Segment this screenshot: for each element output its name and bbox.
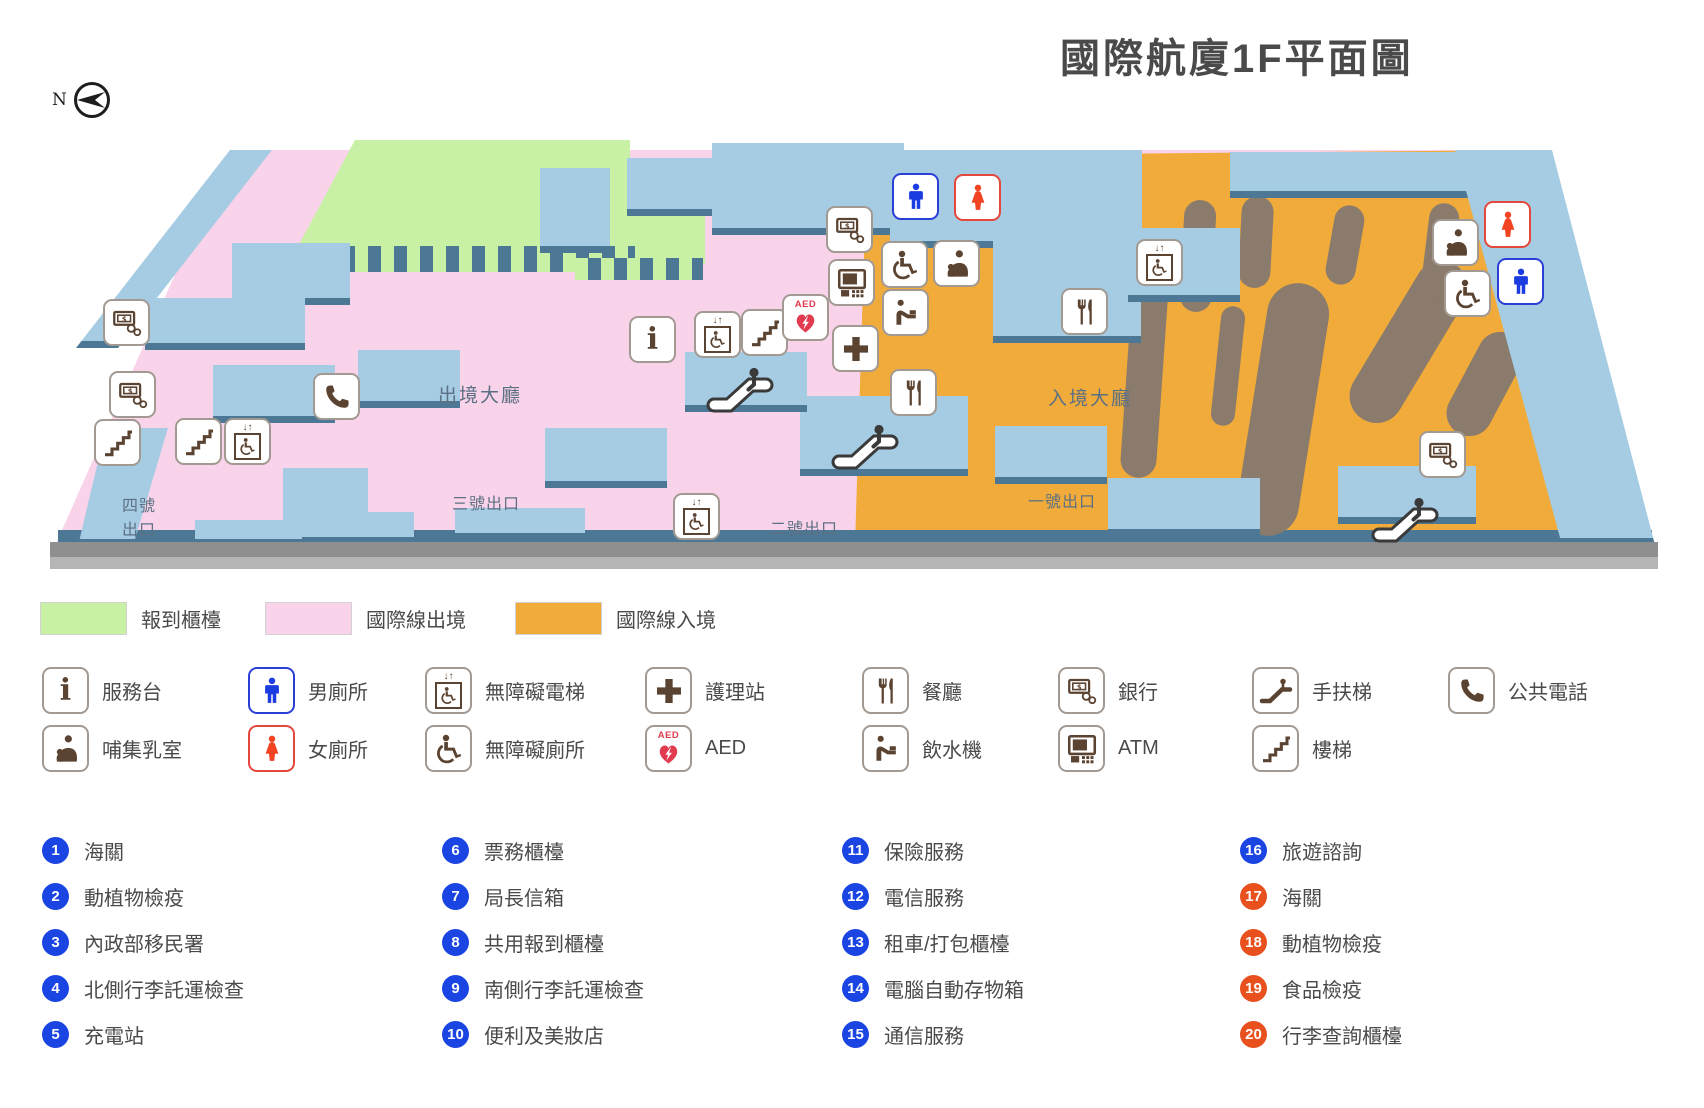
numbered-legend-item: 15 通信服務	[842, 1020, 964, 1049]
wall-block	[145, 298, 305, 350]
wall-block	[540, 168, 610, 253]
stairs-icon	[1252, 725, 1299, 772]
area-legend-item: 報到櫃檯	[40, 602, 221, 635]
number-badge: 9	[442, 975, 469, 1002]
numbered-legend-item: 20 行李查詢櫃檯	[1240, 1020, 1402, 1049]
legend-bank-icon: 銀行	[1058, 667, 1158, 714]
numbered-legend-label: 電信服務	[884, 882, 964, 911]
number-badge: 12	[842, 883, 869, 910]
legend-icon-label: 護理站	[705, 676, 765, 705]
number-badge: 15	[842, 1021, 869, 1048]
legend-accessible-toilet-icon: 無障礙廁所	[425, 725, 585, 772]
atm-icon	[1058, 725, 1105, 772]
numbered-legend-label: 局長信箱	[484, 882, 564, 911]
map-accessible-elevator-icon: ↓↑	[224, 418, 271, 465]
number-badge: 11	[842, 837, 869, 864]
nurse-station-icon	[645, 667, 692, 714]
map-female-toilet-icon	[954, 174, 1001, 221]
exit-label: 四號	[122, 492, 156, 516]
page-title: 國際航廈1F平面圖	[1060, 26, 1414, 84]
numbered-legend-label: 租車/打包櫃檯	[884, 928, 1010, 957]
legend-icon-label: 餐廳	[922, 676, 962, 705]
map-restaurant-icon	[1061, 288, 1108, 335]
map-accessible-elevator-icon: ↓↑	[1136, 239, 1183, 286]
legend-icon-label: 無障礙廁所	[485, 734, 585, 763]
numbered-legend-item: 14 電腦自動存物箱	[842, 974, 1024, 1003]
wall-block	[545, 428, 667, 488]
map-escalator-icon	[829, 421, 901, 478]
numbered-legend-label: 充電站	[84, 1020, 144, 1049]
numbered-legend-label: 南側行李託運檢查	[484, 974, 644, 1003]
legend-stairs-icon: 樓梯	[1252, 725, 1352, 772]
numbered-legend-item: 13 租車/打包櫃檯	[842, 928, 1010, 957]
checkin-counter-teeth	[575, 258, 703, 280]
area-legend-label: 國際線出境	[366, 604, 466, 633]
numbered-legend-item: 10 便利及美妝店	[442, 1020, 604, 1049]
legend-public-phone-icon: 公共電話	[1448, 667, 1588, 714]
exit-label: 一號出口	[1028, 488, 1096, 512]
number-badge: 7	[442, 883, 469, 910]
exit-label: 出口	[122, 516, 156, 540]
legend-icon-label: 樓梯	[1312, 734, 1352, 763]
numbered-legend-item: 6 票務櫃檯	[442, 836, 564, 865]
numbered-legend-item: 8 共用報到櫃檯	[442, 928, 604, 957]
map-accessible-elevator-icon: ↓↑	[694, 311, 741, 358]
wall-block	[1108, 478, 1260, 536]
numbered-legend-item: 5 充電站	[42, 1020, 144, 1049]
numbered-legend-label: 海關	[84, 836, 124, 865]
compass-n-label: N	[52, 90, 67, 110]
area-color-swatch	[515, 602, 602, 635]
numbered-legend-label: 動植物檢疫	[84, 882, 184, 911]
legend-icon-label: 服務台	[102, 676, 162, 705]
legend-icon-label: 公共電話	[1508, 676, 1588, 705]
number-badge: 17	[1240, 883, 1267, 910]
numbered-legend-label: 通信服務	[884, 1020, 964, 1049]
numbered-legend-item: 12 電信服務	[842, 882, 964, 911]
hall-label: 入境大廳	[1048, 384, 1132, 411]
female-toilet-icon	[248, 725, 295, 772]
map-water-fountain-icon	[882, 289, 929, 336]
numbered-legend-label: 海關	[1282, 882, 1322, 911]
legend-icon-label: 飲水機	[922, 734, 982, 763]
number-badge: 5	[42, 1021, 69, 1048]
numbered-legend-item: 7 局長信箱	[442, 882, 564, 911]
hall-label: 出境大廳	[438, 381, 522, 408]
legend-escalator-icon: 手扶梯	[1252, 667, 1372, 714]
map-accessible-toilet-icon	[881, 241, 928, 288]
area-color-swatch	[265, 602, 352, 635]
legend-icon-label: 男廁所	[308, 676, 368, 705]
legend-water-fountain-icon: 飲水機	[862, 725, 982, 772]
legend-nurse-station-icon: 護理站	[645, 667, 765, 714]
accessible-elevator-icon: ↓↑	[425, 667, 472, 714]
legend-female-toilet-icon: 女廁所	[248, 725, 368, 772]
map-restaurant-icon	[890, 369, 937, 416]
area-legend-item: 國際線入境	[515, 602, 716, 635]
water-fountain-icon	[862, 725, 909, 772]
map-bank-icon	[1419, 431, 1466, 478]
restaurant-icon	[862, 667, 909, 714]
male-toilet-icon	[248, 667, 295, 714]
number-badge: 3	[42, 929, 69, 956]
map-bank-icon	[826, 206, 873, 253]
accessible-toilet-icon	[425, 725, 472, 772]
numbered-legend-label: 內政部移民署	[84, 928, 204, 957]
legend-male-toilet-icon: 男廁所	[248, 667, 368, 714]
legend-icon-label: ATM	[1118, 737, 1159, 760]
numbered-legend-label: 食品檢疫	[1282, 974, 1362, 1003]
number-badge: 2	[42, 883, 69, 910]
map-male-toilet-icon	[892, 173, 939, 220]
number-badge: 1	[42, 837, 69, 864]
legend-nursing-room-icon: 哺集乳室	[42, 725, 182, 772]
map-bank-icon	[109, 371, 156, 418]
exit-label: 二號出口	[770, 515, 838, 539]
numbered-legend-item: 18 動植物檢疫	[1240, 928, 1382, 957]
wall-block	[302, 512, 414, 544]
numbered-legend-label: 動植物檢疫	[1282, 928, 1382, 957]
number-badge: 14	[842, 975, 869, 1002]
map-stairs-icon	[741, 309, 788, 356]
number-badge: 8	[442, 929, 469, 956]
map-bank-icon	[103, 299, 150, 346]
area-legend-label: 國際線入境	[616, 604, 716, 633]
number-badge: 16	[1240, 837, 1267, 864]
legend-icon-label: AED	[705, 737, 746, 760]
legend-info-icon: i 服務台	[42, 667, 162, 714]
map-female-toilet-icon	[1484, 201, 1531, 248]
escalator-icon	[1252, 667, 1299, 714]
number-badge: 19	[1240, 975, 1267, 1002]
floor-plan: N 國際航廈1F平面圖 ↓↑i	[0, 0, 1704, 1108]
legend-atm-icon: ATM	[1058, 725, 1159, 772]
numbered-legend-item: 17 海關	[1240, 882, 1322, 911]
number-badge: 20	[1240, 1021, 1267, 1048]
map-nurse-station-icon	[832, 325, 879, 372]
baggage-carousel	[1238, 195, 1275, 289]
numbered-legend-label: 便利及美妝店	[484, 1020, 604, 1049]
numbered-legend-item: 16 旅遊諮詢	[1240, 836, 1362, 865]
map-accessible-elevator-icon: ↓↑	[673, 493, 720, 540]
map-escalator-icon	[704, 364, 776, 421]
compass-icon	[72, 80, 112, 120]
numbered-legend-item: 3 內政部移民署	[42, 928, 204, 957]
numbered-legend-label: 北側行李託運檢查	[84, 974, 244, 1003]
number-badge: 10	[442, 1021, 469, 1048]
area-legend-label: 報到櫃檯	[141, 604, 221, 633]
map-public-phone-icon	[313, 373, 360, 420]
legend-aed-icon: AED AED	[645, 725, 746, 772]
map-escalator-icon	[1369, 494, 1441, 551]
legend-icon-label: 女廁所	[308, 734, 368, 763]
nursing-room-icon	[42, 725, 89, 772]
number-badge: 6	[442, 837, 469, 864]
aed-icon: AED	[645, 725, 692, 772]
public-phone-icon	[1448, 667, 1495, 714]
map-stairs-icon	[94, 419, 141, 466]
map-stairs-icon	[175, 418, 222, 465]
compass-north-indicator: N	[52, 80, 112, 120]
wall-block	[995, 426, 1107, 484]
base-platform-light	[50, 557, 1658, 569]
numbered-legend-label: 票務櫃檯	[484, 836, 564, 865]
exit-label: 三號出口	[452, 490, 520, 514]
number-badge: 13	[842, 929, 869, 956]
bank-icon	[1058, 667, 1105, 714]
numbered-legend-item: 9 南側行李託運檢查	[442, 974, 644, 1003]
map-nursing-room-icon	[933, 240, 980, 287]
map-aed-icon: AED	[782, 294, 829, 341]
numbered-legend-item: 4 北側行李託運檢查	[42, 974, 244, 1003]
legend-icon-label: 哺集乳室	[102, 734, 182, 763]
number-badge: 18	[1240, 929, 1267, 956]
numbered-legend-item: 11 保險服務	[842, 836, 964, 865]
legend-icon-label: 無障礙電梯	[485, 676, 585, 705]
number-badge: 4	[42, 975, 69, 1002]
legend-accessible-elevator-icon: ↓↑ 無障礙電梯	[425, 667, 585, 714]
legend-icon-label: 銀行	[1118, 676, 1158, 705]
numbered-legend-item: 1 海關	[42, 836, 124, 865]
map-info-icon: i	[629, 316, 676, 363]
numbered-legend-label: 行李查詢櫃檯	[1282, 1020, 1402, 1049]
map-male-toilet-icon	[1497, 258, 1544, 305]
area-color-swatch	[40, 602, 127, 635]
wall-block	[232, 243, 350, 305]
legend-restaurant-icon: 餐廳	[862, 667, 962, 714]
legend-icon-label: 手扶梯	[1312, 676, 1372, 705]
numbered-legend-label: 共用報到櫃檯	[484, 928, 604, 957]
numbered-legend-label: 旅遊諮詢	[1282, 836, 1362, 865]
numbered-legend-label: 保險服務	[884, 836, 964, 865]
info-icon: i	[42, 667, 89, 714]
numbered-legend-item: 19 食品檢疫	[1240, 974, 1362, 1003]
numbered-legend-label: 電腦自動存物箱	[884, 974, 1024, 1003]
wall-block	[712, 143, 904, 235]
numbered-legend-item: 2 動植物檢疫	[42, 882, 184, 911]
map-accessible-toilet-icon	[1444, 270, 1491, 317]
map-nursing-room-icon	[1432, 219, 1479, 266]
area-legend-item: 國際線出境	[265, 602, 466, 635]
map-atm-icon	[828, 259, 875, 306]
